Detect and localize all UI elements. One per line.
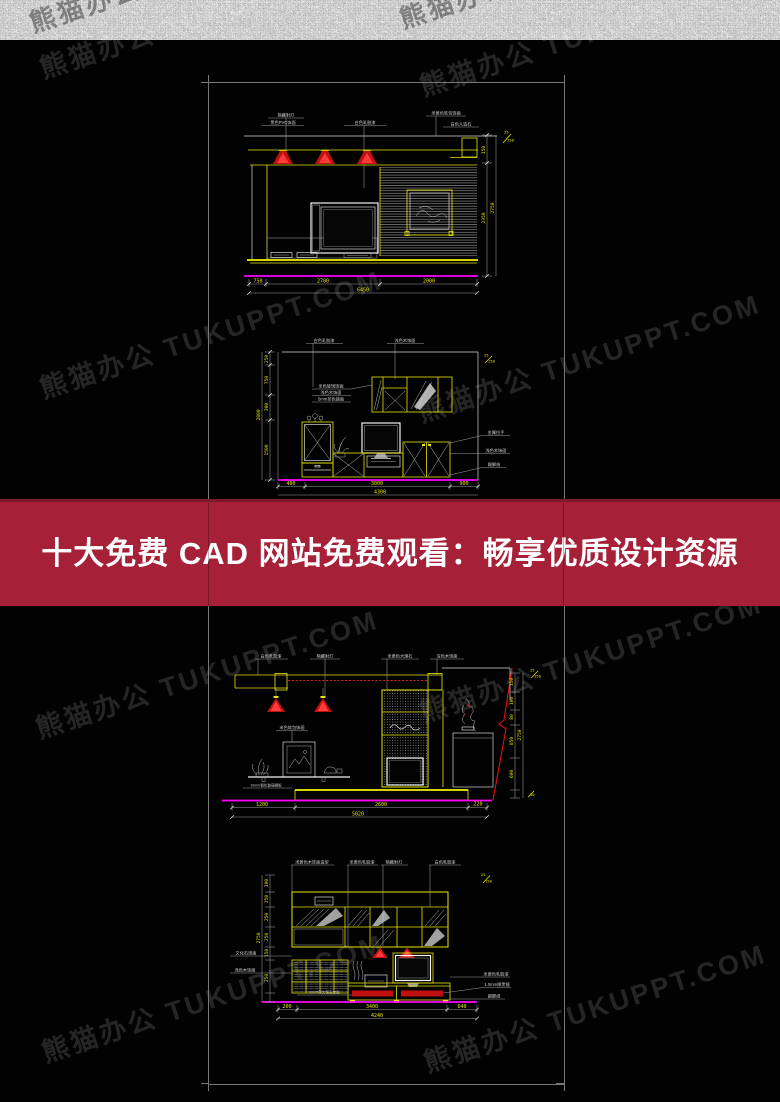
shelf-unit [292, 892, 448, 947]
dimension-chain-right: 150 2350 2750 25 150 [481, 130, 515, 278]
material-label: 米色软包饰面 [279, 724, 304, 731]
material-leaders-mid: 米色玻璃饰面 浅色木饰面 5mm茶色镜面 [312, 383, 372, 403]
level-note: 150 [534, 674, 542, 679]
material-label: 暗藏射灯 [386, 859, 404, 866]
material-label: 白色乳胶漆 [314, 337, 335, 344]
striped-wall-panel [380, 167, 477, 256]
material-label: 20mm厚大理石台面 [308, 990, 340, 995]
dimension-chain-bottom: 1200 2600 220 5020 [230, 802, 489, 819]
dim-label: 3000 [371, 481, 383, 487]
material-label: 米黄色乳胶漆 [349, 859, 374, 866]
dim-total-label: 6450 [357, 287, 369, 293]
material-label: 5mm茶色镜面 [318, 396, 344, 403]
dim-label: 1500 [264, 444, 270, 455]
figurine-icon [462, 699, 476, 731]
plant-icon [335, 437, 350, 457]
downlight-icon [372, 948, 388, 959]
dim-total-label: 2750 [490, 202, 496, 213]
dim-label: 400 [286, 481, 295, 487]
material-label: 米黄色乳胶漆 [483, 971, 508, 978]
dimension-chain-left: 100 250 250 250 150 250 2750 [256, 875, 275, 1002]
dim-label: 600 [509, 770, 515, 779]
dimension-chain-bottom: 750 2700 2000 6450 [247, 278, 479, 295]
page-title: 十大免费 CAD 网站免费观看：畅享优质设计资源 [15, 534, 764, 574]
dim-label: 3400 [366, 1004, 378, 1010]
material-label: 米色玻璃饰面 [318, 383, 343, 390]
dim-label: 80 [509, 714, 515, 720]
static-noise-band: 熊猫办公 TUKUPPT.COM 熊猫办公 TUKUPPT.COM [0, 0, 780, 40]
downlight-icons [273, 151, 377, 165]
dim-label: 850 [509, 737, 515, 746]
tv [393, 953, 433, 987]
material-label: 浅色木饰面 [395, 337, 416, 344]
svg-text:150: 150 [485, 879, 493, 884]
dim-label: 150 [481, 146, 487, 155]
hearth-platform [295, 790, 468, 800]
material-label: 踢脚线 [488, 461, 501, 468]
drawer-unit [292, 960, 348, 993]
dim-label: 220 [473, 802, 482, 808]
material-label: 白色人造石 [451, 121, 472, 128]
dim-label: 250 [264, 355, 270, 364]
drawing-tv-cabinet-elevation: 白色乳胶漆 浅色木饰面 250 750 300 1500 2800 [204, 335, 560, 505]
page: 熊猫办公 TUKUPPT.COM 熊猫办公 TUKUPPT.COM 熊猫办公 T… [0, 0, 780, 1102]
dim-label: 2000 [423, 278, 435, 284]
material-label: 浅色木饰面 [486, 447, 507, 454]
dimension-chain-right: 150 100 80 850 600 2750 25 150 50 [509, 668, 542, 799]
svg-text:25: 25 [481, 872, 486, 877]
title-banner: 十大免费 CAD 网站免费观看：畅享优质设计资源 [0, 499, 780, 606]
dim-label: 250 [264, 974, 270, 983]
dimension-chain-left: 250 750 300 1500 2800 [256, 350, 275, 482]
downlight-icon [315, 151, 335, 165]
dim-total-label: 4300 [374, 490, 386, 496]
pendant-light-icon [267, 688, 285, 712]
mosaic-column [382, 690, 428, 787]
material-label: 1.0mm厚黑镜 [484, 981, 510, 988]
dimension-chain-bottom: 200 3400 640 4240 [276, 1004, 479, 1020]
drawing-fireplace-wall-elevation: 白色乳胶漆 暗藏射灯 米黄色大理石 深色木饰面 [204, 635, 564, 840]
console-vignette [248, 742, 350, 782]
material-leaders-right: 米黄色乳胶漆 1.0mm厚黑镜 踢脚线 [443, 971, 511, 1000]
drawing-tv-wall-elevation: 暗藏射灯 黑色PVC饰面 白色乳胶漆 米黄色软包饰面 白色人造石 [204, 88, 560, 313]
material-label: 深色木饰面 [437, 653, 458, 660]
material-label: 金属拉手 [488, 429, 505, 436]
dim-label: 200 [282, 1004, 291, 1010]
downlight-icon [273, 151, 293, 165]
material-label: 浅黄色木饰面造型 [295, 859, 329, 866]
dimension-chain-bottom: 400 3000 900 4300 [276, 481, 480, 496]
dim-label: 250 [264, 895, 270, 904]
level-note: 25 150 [484, 353, 496, 364]
dim-total-label: 2750 [517, 729, 523, 740]
dim-label: 2350 [481, 212, 487, 223]
dim-label: 750 [264, 376, 270, 385]
material-label: 米黄色大理石 [387, 653, 412, 660]
dim-total-label: 2750 [256, 932, 262, 943]
pendant-light-icons [267, 688, 332, 712]
material-label: 白色乳胶漆 [435, 859, 456, 866]
pedestal [453, 733, 493, 787]
material-label: 暗藏射灯 [278, 112, 296, 119]
level-note: 50 [530, 792, 535, 797]
black-mirror-strip [352, 991, 393, 997]
sheet-border-through-banner [563, 502, 564, 606]
dim-total-label: 4240 [371, 1013, 383, 1019]
dim-label: 1200 [256, 802, 268, 808]
black-mirror-strip [401, 991, 443, 997]
material-label: 浅色木饰面 [321, 389, 342, 396]
pendant-light-icon [314, 688, 332, 712]
material-label: 文化石饰面 [236, 950, 257, 957]
wall-cabinet [372, 377, 452, 412]
material-label: 10mm钢化玻璃搁板 [250, 783, 282, 788]
dim-label: 2600 [375, 802, 387, 808]
hatch-block [450, 138, 477, 158]
level-note: 25 150 [481, 872, 493, 884]
dim-label: 750 [253, 278, 262, 284]
material-label: 米黄色软包饰面 [431, 110, 460, 117]
tv [311, 203, 378, 258]
bench-cabinet [348, 983, 450, 1003]
material-label: 暗藏射灯 [317, 653, 335, 660]
material-label: 踢脚线 [488, 993, 501, 1000]
dim-label: 250 [264, 913, 270, 922]
display-cabinet [302, 414, 333, 477]
drawing-bookshelf-elevation: 浅黄色木饰面造型 米黄色乳胶漆 暗藏射灯 白色乳胶漆 [204, 858, 564, 1043]
tv-stand-cabinet [333, 453, 403, 477]
sheet-border-through-banner [208, 502, 209, 606]
dim-label: 150 [509, 678, 515, 687]
dim-total-label: 5020 [352, 812, 364, 818]
dim-label: 640 [457, 1004, 466, 1010]
material-leaders-frame: 米色软包饰面 10mm钢化玻璃搁板 [243, 724, 308, 788]
material-leaders: 白色乳胶漆 暗藏射灯 米黄色大理石 深色木饰面 [255, 653, 464, 697]
dim-label: 250 [264, 933, 270, 942]
dim-label: 2700 [317, 278, 329, 284]
material-label: 黑色PVC饰面 [270, 119, 295, 126]
material-label: 白色乳胶漆 [355, 119, 376, 126]
side-cabinet [403, 442, 450, 477]
dim-label: 150 [264, 949, 270, 958]
svg-text:25: 25 [484, 353, 489, 358]
dim-label: 100 [264, 879, 270, 888]
dim-label: 300 [264, 403, 270, 412]
level-note: 25 [530, 668, 535, 673]
dim-label: 100 [509, 697, 515, 706]
material-label: 浅色木饰面 [235, 967, 256, 974]
level-note: 25 [504, 130, 509, 135]
material-leaders: 白色乳胶漆 浅色木饰面 [306, 337, 424, 387]
break-line [493, 668, 512, 800]
downlight-icon [357, 151, 377, 165]
dim-label: 900 [459, 481, 468, 487]
svg-text:150: 150 [488, 359, 496, 364]
level-note: 150 [507, 138, 515, 143]
material-label: 白色乳胶漆 [261, 653, 282, 660]
material-leaders-right: 金属拉手 浅色木饰面 踢脚线 [450, 429, 510, 475]
dim-total-label: 2800 [256, 409, 262, 420]
